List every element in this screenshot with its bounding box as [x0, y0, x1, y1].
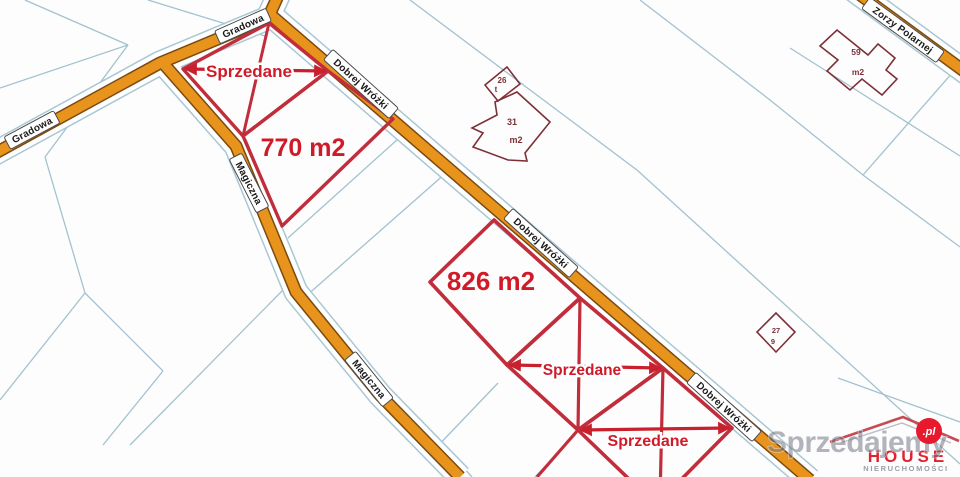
sold-label-top: Sprzedane: [206, 62, 292, 81]
sold-label-middle: Sprzedane: [543, 362, 622, 379]
building-59-number: 59: [851, 47, 861, 57]
building-26-number: 26: [498, 76, 507, 85]
pl-badge-text: .pl: [923, 426, 937, 438]
sold-arrow-lower: [581, 428, 729, 430]
building-27-suffix: 9: [771, 337, 775, 346]
logo-tagline: NIERUCHOMOŚCI: [863, 464, 948, 473]
building-59-unit: m2: [852, 67, 865, 77]
map-canvas: Sprzedane 770 m2 826 m2 Sprzedane Sprzed…: [0, 0, 960, 477]
cadastral-map: Sprzedane 770 m2 826 m2 Sprzedane Sprzed…: [0, 0, 960, 477]
sold-label-lower: Sprzedane: [608, 433, 689, 450]
building-27-number: 27: [772, 326, 780, 335]
area-label-770: 770 m2: [261, 134, 346, 162]
area-label-826: 826 m2: [447, 266, 535, 296]
building-31-number: 31: [507, 117, 517, 127]
building-26-suffix: t: [495, 85, 498, 94]
building-31-unit: m2: [509, 135, 522, 145]
